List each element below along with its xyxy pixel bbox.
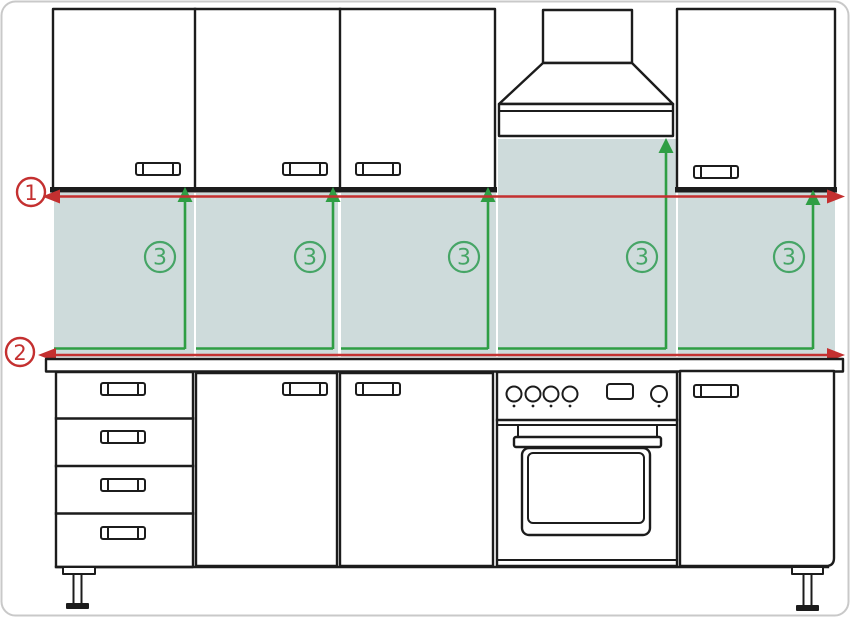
upper-right-cabinet	[677, 9, 835, 189]
cabinet-legs	[63, 567, 823, 611]
backsplash-panel	[678, 192, 835, 357]
upper-cabinet-block	[53, 9, 495, 189]
drawer-handle	[101, 479, 145, 491]
upper-cabinets	[50, 9, 837, 193]
upper-door-handle	[136, 163, 180, 175]
backsplash-panel	[341, 193, 496, 357]
base-right-cabinet	[680, 371, 834, 566]
base-door-handle	[356, 383, 400, 395]
hood-chimney	[543, 10, 632, 63]
height-marker-label: 3	[635, 246, 649, 271]
oven-door-handle	[514, 437, 661, 447]
base-door	[196, 373, 337, 566]
right-leg	[792, 567, 823, 611]
drawer-handle	[101, 431, 145, 443]
upper-door-handle	[356, 163, 400, 175]
backsplash-panel	[54, 193, 194, 357]
height-marker-label: 3	[153, 246, 167, 271]
dimension-1-label: 1	[24, 181, 37, 205]
upper-door-handle	[283, 163, 327, 175]
height-marker-label: 3	[457, 246, 471, 271]
hood-canopy-slope	[499, 63, 673, 104]
oven	[497, 372, 677, 566]
upper-cabinet-bottom-edge	[50, 187, 497, 193]
base-cabinets	[56, 371, 834, 567]
backsplash-panel	[196, 193, 338, 357]
base-door-handle	[283, 383, 327, 395]
height-marker-label: 3	[303, 246, 317, 271]
backsplash-panel	[498, 139, 676, 357]
drawer-unit	[56, 372, 193, 567]
height-marker-label: 3	[782, 246, 796, 271]
hood-canopy-body	[499, 104, 673, 136]
base-door	[340, 373, 493, 566]
countertop	[46, 359, 843, 372]
upper-door-handle	[694, 166, 738, 178]
left-leg	[63, 567, 95, 609]
range-hood	[499, 10, 673, 136]
base-door-handle	[694, 385, 738, 397]
drawer-handle	[101, 527, 145, 539]
dimension-2-label: 2	[13, 341, 26, 365]
kitchen-measurement-diagram: 3 3 3 3 3 1 2	[0, 0, 850, 617]
drawer-handle	[101, 383, 145, 395]
